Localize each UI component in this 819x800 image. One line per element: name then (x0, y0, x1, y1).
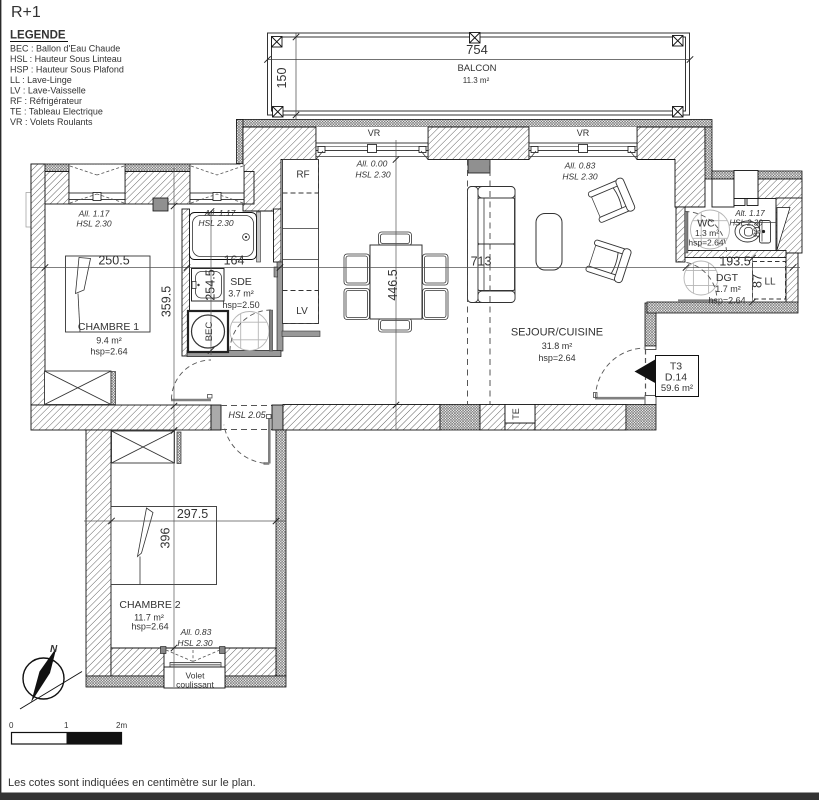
svg-text:HSL 2.30: HSL 2.30 (562, 172, 598, 182)
svg-text:59.6 m²: 59.6 m² (661, 383, 693, 394)
svg-text:396: 396 (159, 528, 173, 549)
svg-text:87: 87 (751, 274, 765, 288)
svg-text:LL : Lave-Linge: LL : Lave-Linge (10, 75, 72, 85)
svg-text:BALCON: BALCON (457, 63, 496, 74)
svg-text:Les cotes sont indiquées en ce: Les cotes sont indiquées en centimètre s… (8, 777, 256, 789)
svg-text:BEC: BEC (204, 322, 215, 342)
svg-text:80: 80 (752, 227, 763, 238)
svg-text:HSL 2.30: HSL 2.30 (177, 638, 213, 648)
svg-text:CHAMBRE 2: CHAMBRE 2 (119, 599, 180, 611)
svg-text:HSL 2.30: HSL 2.30 (729, 219, 763, 228)
svg-text:D.14: D.14 (665, 372, 687, 384)
svg-text:VR: VR (577, 128, 590, 138)
svg-text:HSL 2.30: HSL 2.30 (198, 218, 234, 228)
svg-text:193.5: 193.5 (719, 255, 750, 269)
svg-text:SEJOUR/CUISINE: SEJOUR/CUISINE (511, 327, 603, 339)
svg-text:hsp=2.64: hsp=2.64 (688, 238, 723, 248)
svg-text:250.5: 250.5 (98, 254, 129, 268)
svg-text:446.5: 446.5 (386, 269, 400, 300)
svg-text:3.7 m²: 3.7 m² (228, 289, 254, 299)
svg-text:254.5: 254.5 (204, 269, 218, 300)
svg-text:0: 0 (9, 721, 14, 730)
svg-text:LV : Lave-Vaisselle: LV : Lave-Vaisselle (10, 86, 86, 96)
svg-text:164: 164 (224, 254, 245, 268)
svg-text:DGT: DGT (716, 272, 739, 284)
svg-text:hsp=2.64: hsp=2.64 (708, 296, 745, 306)
svg-text:BEC : Ballon d'Eau Chaude: BEC : Ballon d'Eau Chaude (10, 44, 120, 54)
svg-text:N: N (50, 644, 58, 655)
svg-text:9.4 m²: 9.4 m² (96, 336, 122, 346)
svg-text:RF: RF (296, 170, 309, 181)
svg-text:hsp=2.64: hsp=2.64 (538, 353, 575, 363)
svg-text:HSP : Hauteur Sous Plafond: HSP : Hauteur Sous Plafond (10, 65, 124, 75)
svg-text:All. 1.17: All. 1.17 (204, 208, 236, 218)
svg-text:2m: 2m (116, 721, 127, 730)
svg-text:VR: VR (368, 128, 381, 138)
svg-text:VR : Volets Roulants: VR : Volets Roulants (10, 117, 93, 127)
svg-text:1.7 m²: 1.7 m² (715, 284, 741, 294)
svg-text:LV: LV (296, 306, 308, 317)
svg-text:RF : Réfrigérateur: RF : Réfrigérateur (10, 96, 82, 106)
svg-text:150: 150 (275, 68, 289, 89)
svg-text:SDE: SDE (230, 276, 252, 288)
svg-text:Alt. 1.17: Alt. 1.17 (734, 209, 765, 218)
svg-text:All. 0.00: All. 0.00 (356, 159, 388, 169)
svg-text:LEGENDE: LEGENDE (10, 30, 66, 42)
svg-text:754: 754 (466, 42, 488, 57)
svg-text:TE: TE (511, 408, 521, 420)
svg-text:HSL : Hauteur Sous Linteau: HSL : Hauteur Sous Linteau (10, 54, 122, 64)
svg-text:HSL 2.30: HSL 2.30 (355, 170, 391, 180)
svg-text:R+1: R+1 (11, 4, 41, 21)
svg-text:11.3 m²: 11.3 m² (463, 76, 490, 85)
svg-text:31.8 m²: 31.8 m² (542, 341, 573, 351)
svg-text:coulissant: coulissant (176, 680, 214, 690)
svg-text:LL: LL (764, 277, 776, 288)
svg-text:CHAMBRE 1: CHAMBRE 1 (78, 321, 139, 333)
svg-text:hsp=2.64: hsp=2.64 (90, 347, 127, 357)
svg-text:297.5: 297.5 (177, 507, 208, 521)
svg-text:hsp=2.50: hsp=2.50 (222, 300, 259, 310)
svg-text:713: 713 (471, 255, 492, 269)
svg-text:HSL 2.30: HSL 2.30 (76, 219, 112, 229)
svg-text:hsp=2.64: hsp=2.64 (131, 622, 168, 632)
svg-text:All. 1.17: All. 1.17 (78, 209, 110, 219)
svg-text:TE : Tableau Electrique: TE : Tableau Electrique (10, 107, 103, 117)
svg-text:HSL 2.05: HSL 2.05 (228, 410, 266, 420)
svg-text:All. 0.83: All. 0.83 (180, 627, 212, 637)
svg-text:1: 1 (64, 721, 69, 730)
svg-text:All. 0.83: All. 0.83 (564, 161, 596, 171)
svg-text:359.5: 359.5 (160, 286, 174, 317)
svg-text:1.3 m²: 1.3 m² (695, 228, 719, 238)
